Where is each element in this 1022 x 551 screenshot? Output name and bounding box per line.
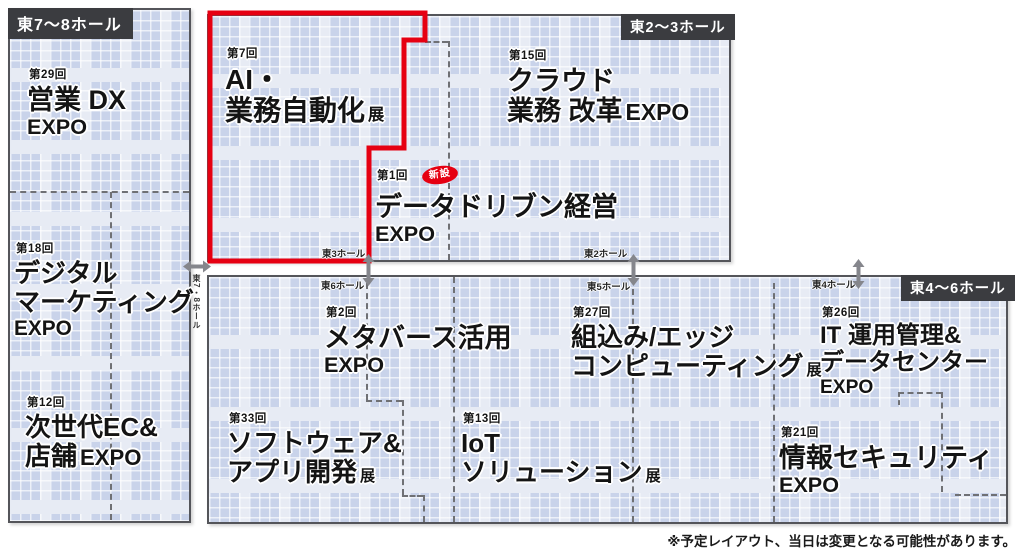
zone-edition: 第13回 <box>463 410 661 426</box>
zone-edition: 第27回 <box>573 304 822 320</box>
zone-title: クラウド <box>507 66 689 96</box>
zone-edition: 第33回 <box>229 410 402 426</box>
two-way-arrow-vertical-icon <box>362 254 375 286</box>
zone-title: 組込み/エッジ <box>571 323 822 352</box>
highlight-outline <box>203 6 435 268</box>
zone-edition: 第2回 <box>326 304 512 320</box>
hall-tag-east-7-8: 東7〜8ホール <box>8 8 133 39</box>
zone-expo: EXPO <box>820 377 988 399</box>
zone-title: アプリ開発 <box>227 457 357 487</box>
zone-edition: 第21回 <box>781 424 993 440</box>
zone-divider <box>10 191 189 193</box>
zone-title: デジタル <box>14 259 194 288</box>
two-way-arrow-vertical-icon <box>627 254 640 286</box>
zone-edition: 第12回 <box>27 394 158 410</box>
zone-suffix: 展 <box>645 468 660 485</box>
zone-expo: EXPO <box>779 473 993 497</box>
zone-title: 次世代EC& <box>25 413 158 442</box>
zone-ec-store: 第12回 次世代EC& 店舗EXPO <box>25 394 158 471</box>
hall-tag-east-2-3: 東2〜3ホール <box>621 14 735 40</box>
corridor-label-east5: 東5ホール <box>587 279 630 293</box>
corridor-label-east2: 東2ホール <box>584 246 627 260</box>
corridor-label-east6: 東6ホール <box>321 278 364 292</box>
zone-title: メタバース活用 <box>324 323 512 353</box>
zone-title: 情報セキュリティ <box>779 443 993 473</box>
zone-digital-marketing: 第18回 デジタル マーケティング EXPO <box>14 240 194 341</box>
zone-divider <box>423 495 425 522</box>
zone-divider <box>402 400 404 495</box>
zone-title: 店舗 <box>25 441 77 471</box>
zone-info-security: 第21回 情報セキュリティ EXPO <box>779 424 993 497</box>
zone-sales-dx: 第29回 営業 DX EXPO <box>27 66 126 139</box>
floor-map: 東7〜8ホール 東2〜3ホール 東4〜6ホール 第29回 営業 DX EXPO … <box>0 0 1022 551</box>
zone-metaverse: 第2回 メタバース活用 EXPO <box>324 304 512 377</box>
zone-expo: EXPO <box>324 353 512 377</box>
zone-title: IoT <box>461 429 661 458</box>
hall-tag-east-4-6: 東4〜6ホール <box>901 275 1015 301</box>
zone-it-ops-dc: 第26回 IT 運用管理& データセンター EXPO <box>820 304 988 398</box>
two-way-arrow-horizontal-icon <box>183 260 211 273</box>
zone-suffix: 展 <box>360 468 375 485</box>
zone-edition: 第18回 <box>16 240 194 256</box>
zone-software-app: 第33回 ソフトウェア& アプリ開発展 <box>227 410 402 487</box>
zone-divider <box>366 400 402 402</box>
zone-title: データセンター <box>820 350 988 377</box>
zone-expo: EXPO <box>14 317 194 340</box>
zone-iot-solution: 第13回 IoT ソリューション展 <box>461 410 661 487</box>
zone-title: ソフトウェア& <box>227 429 402 458</box>
footnote: ※予定レイアウト、当日は変更となる可能性があります。 <box>667 530 1016 550</box>
zone-title: マーケティング <box>14 288 194 317</box>
corridor-label-east78-vertical: 東7・8ホール <box>191 274 202 330</box>
zone-title: コンピューティング <box>571 351 803 381</box>
zone-expo: EXPO <box>626 99 690 125</box>
zone-expo: EXPO <box>80 445 141 470</box>
zone-embedded-edge: 第27回 組込み/エッジ コンピューティング展 <box>571 304 822 381</box>
zone-title: IT 運用管理& <box>820 323 988 350</box>
corridor-label-east3: 東3ホール <box>322 246 365 260</box>
zone-cloud-bpr: 第15回 クラウド 業務 改革EXPO <box>507 47 689 126</box>
zone-edition: 第15回 <box>509 47 689 63</box>
corridor-label-east4: 東4ホール <box>812 277 855 291</box>
zone-divider <box>402 495 423 497</box>
zone-edition: 第29回 <box>29 66 126 82</box>
zone-edition: 第26回 <box>822 304 988 320</box>
zone-title: ソリューション <box>461 457 642 487</box>
zone-title: 業務 改革 <box>507 96 623 126</box>
two-way-arrow-vertical-icon <box>852 259 865 289</box>
zone-title: 営業 DX <box>27 85 126 115</box>
zone-expo: EXPO <box>27 115 126 139</box>
